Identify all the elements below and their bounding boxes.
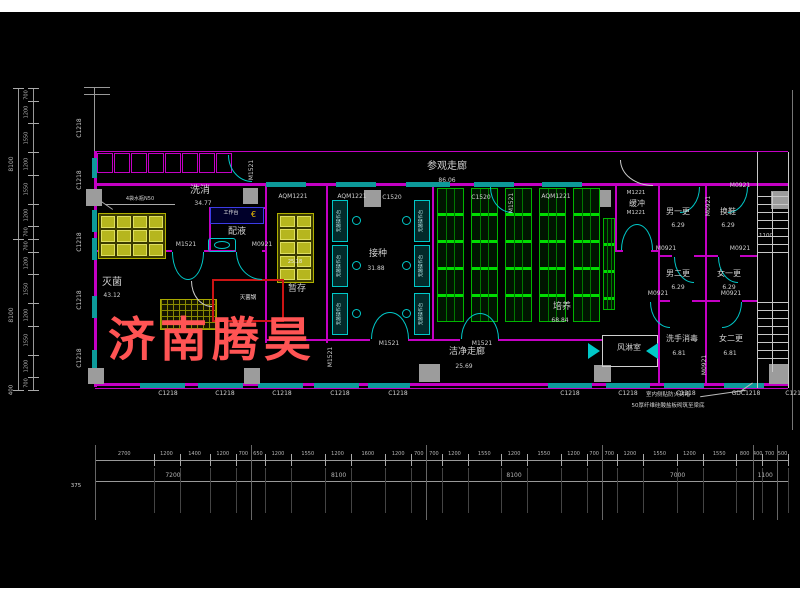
stair-tread — [758, 204, 788, 205]
wall-chg-r1b — [694, 255, 718, 257]
room-women-change-2: 女二更 — [719, 335, 743, 343]
grid-stub — [703, 468, 704, 513]
culture-rack — [471, 188, 498, 322]
plan-label: C1218 — [77, 232, 83, 251]
dim-tick — [351, 454, 352, 466]
dim-tick — [28, 152, 39, 153]
dim-tick — [442, 454, 443, 466]
dim-value: 700 — [765, 452, 775, 457]
dim-value: 1200 — [331, 452, 344, 457]
plan-label: C1218 — [77, 290, 83, 309]
door-arc — [637, 224, 653, 250]
stub — [84, 94, 110, 95]
dim-value: 700 — [605, 452, 615, 457]
dim-total: 8100 — [506, 473, 521, 479]
window-bot-5 — [368, 383, 410, 388]
dim-value: 1550 — [301, 452, 314, 457]
stair-tread — [758, 244, 788, 245]
dim-value: 1200 — [160, 452, 173, 457]
wall-v658 — [658, 185, 660, 385]
grid-stub — [501, 468, 502, 513]
dim-value: 1550 — [25, 131, 30, 144]
dim-tick — [703, 454, 704, 466]
grid-stub — [291, 468, 292, 513]
window-left-3 — [92, 238, 97, 260]
air-shower-door-left — [588, 343, 600, 359]
plan-label: 25.69 — [455, 364, 472, 370]
dim-tick — [28, 252, 39, 253]
stair-tread — [758, 358, 788, 359]
column — [244, 368, 260, 384]
dim-value: 1200 — [448, 452, 461, 457]
window-top-2 — [336, 182, 376, 187]
stool — [352, 216, 361, 225]
grid-line-right — [792, 90, 793, 430]
stair-tread — [758, 252, 788, 253]
wall-bottom-outer — [95, 388, 788, 389]
room-shoe-change: 换鞋 — [720, 208, 736, 216]
window-bot-4 — [314, 383, 359, 388]
door-arc — [236, 252, 262, 280]
wall-chg-r2c — [742, 300, 757, 302]
locker — [131, 153, 147, 173]
rack-washing-room — [98, 213, 166, 259]
stair-divider — [772, 192, 773, 372]
stair-wall — [757, 152, 758, 388]
wall-corridor-b — [408, 339, 460, 341]
plan-label: C1218 — [785, 391, 800, 397]
column — [243, 188, 258, 204]
plan-label: 6.81 — [723, 351, 736, 357]
grid-stub — [468, 468, 469, 513]
plan-label: 无菌操作台 — [338, 210, 343, 233]
plan-label: C1218 — [77, 348, 83, 367]
plan-label: C1520 — [471, 195, 490, 201]
note-line2: 50厚纤维硅酸盐板砌筑至梁底 — [632, 404, 705, 410]
dim-tick — [28, 355, 39, 356]
stool — [352, 261, 361, 270]
plan-label: M0921 — [702, 355, 708, 375]
plan-label: C1218 — [272, 391, 291, 397]
plan-label: 无菌操作台 — [338, 255, 343, 278]
plan-label: M0921 — [730, 183, 750, 189]
window-bot-6 — [548, 383, 592, 388]
dim-value: 1200 — [567, 452, 580, 457]
wall-buffer-a — [615, 250, 623, 252]
stair-wall — [788, 152, 789, 388]
wall-v326 — [326, 185, 328, 343]
wall-v615 — [615, 185, 617, 250]
plan-label: 68.84 — [551, 318, 568, 324]
stool — [402, 216, 411, 225]
plan-label: M1521 — [328, 347, 334, 367]
door-arc — [650, 302, 670, 328]
dim-value: 1200 — [25, 157, 30, 170]
plan-label: M1521 — [509, 193, 515, 213]
dim-value: 700 — [25, 90, 30, 100]
dim-value: 500 — [778, 452, 788, 457]
plan-label: 25.18 — [288, 260, 302, 265]
plan-label: M0921 — [730, 246, 750, 252]
grid-line — [426, 445, 427, 520]
dim-tick — [236, 454, 237, 466]
column — [88, 368, 104, 384]
wall-chg-r1c — [740, 255, 757, 257]
dim-value: 700 — [414, 452, 424, 457]
plan-label: C1218 — [330, 391, 349, 397]
window-left-4 — [92, 296, 97, 318]
stair-tread — [758, 334, 788, 335]
watermark-text: 济南腾昊 — [108, 301, 316, 370]
plan-label: 6.29 — [671, 223, 684, 229]
dim-total: 8100 — [9, 156, 15, 171]
stool — [402, 309, 411, 318]
locker — [97, 153, 113, 173]
dim-value: 1550 — [25, 183, 30, 196]
grid-line — [602, 445, 603, 520]
dim-value: 1200 — [272, 452, 285, 457]
grid-line — [95, 445, 96, 520]
dim-tick — [180, 454, 181, 466]
dim-tick — [291, 454, 292, 466]
grid-stub — [527, 468, 528, 513]
room-inoculation: 接种 — [369, 250, 387, 259]
window-bot-2 — [198, 383, 243, 388]
dim-value: 700 — [429, 452, 439, 457]
room-cultivation: 培养 — [553, 303, 571, 312]
plan-label: M1521 — [379, 341, 399, 347]
floor-plan: € — [0, 0, 800, 600]
grid-stub — [265, 468, 266, 513]
stair-tread — [758, 302, 788, 303]
window-left-2 — [92, 210, 97, 232]
dim-tick — [28, 390, 39, 391]
wall-chg-r1a — [658, 255, 672, 257]
dim-value: 700 — [25, 228, 30, 238]
dim-tick — [643, 454, 644, 466]
wall-v432 — [432, 185, 434, 339]
column — [594, 365, 611, 382]
grid-stub — [643, 468, 644, 513]
plan-label: C1218 — [618, 391, 637, 397]
stub — [94, 87, 95, 151]
plan-label: C1218 — [158, 391, 177, 397]
dim-tick — [587, 454, 588, 466]
locker — [165, 153, 181, 173]
dim-value: 700 — [25, 241, 30, 251]
dim-tick — [28, 326, 39, 327]
window-bot-1 — [140, 383, 185, 388]
grid-line — [251, 445, 252, 520]
plan-label: C1218 — [560, 391, 579, 397]
plan-label: 无菌操作台 — [420, 210, 425, 233]
dim-tick — [154, 454, 155, 466]
plan-label: AQM1221 — [278, 194, 307, 200]
room-visit-corridor: 参观走廊 — [427, 162, 467, 172]
dim-total: 8100 — [9, 307, 15, 322]
stair-tread — [758, 212, 788, 213]
window-bot-3 — [258, 383, 303, 388]
grid-stub — [351, 468, 352, 513]
wall-top-thin — [95, 151, 788, 152]
dim-tick — [28, 239, 39, 240]
stair-tread — [758, 196, 788, 197]
dim-total: 1100 — [758, 473, 773, 479]
dim-tick — [385, 454, 386, 466]
plan-label: C1218 — [77, 118, 83, 137]
dim-tick — [28, 101, 39, 102]
dim-tick — [28, 88, 39, 89]
column — [771, 191, 789, 209]
sink — [208, 238, 236, 252]
stair-tread — [758, 350, 788, 351]
dim-tick — [28, 226, 39, 227]
plan-label: M0921 — [252, 242, 272, 248]
plan-label: M1521 — [249, 160, 255, 180]
plan-label: 43.12 — [103, 293, 120, 299]
grid-stub — [411, 468, 412, 513]
coin-icon: € — [251, 211, 256, 219]
room-men-change-2: 男二更 — [666, 270, 690, 278]
door-arc — [371, 312, 390, 339]
grid-stub — [325, 468, 326, 513]
dim-tick — [28, 303, 39, 304]
dim-tick — [501, 454, 502, 466]
plan-label: AQM1221 — [337, 194, 366, 200]
room-clean-corridor: 洁净走廊 — [449, 348, 485, 357]
locker — [114, 153, 130, 173]
grid-stub — [442, 468, 443, 513]
equip-rack-note: 4袋水瓶N50 — [126, 197, 154, 202]
plan-label: 无菌操作台 — [420, 255, 425, 278]
dim-tick — [762, 454, 763, 466]
dim-tick — [28, 204, 39, 205]
stair-tread — [758, 220, 788, 221]
dim-value: 700 — [239, 452, 249, 457]
dim-tick — [788, 454, 789, 466]
dim-value: 1200 — [392, 452, 405, 457]
dim-value: 1550 — [25, 282, 30, 295]
dim-tick — [265, 454, 266, 466]
grid-stub — [587, 468, 588, 513]
dim-tick — [28, 175, 39, 176]
grid-line — [777, 445, 778, 520]
stool — [352, 309, 361, 318]
plan-label: M1521 — [176, 242, 196, 248]
dim-value: 2700 — [118, 452, 131, 457]
culture-rack — [437, 188, 464, 322]
plan-label: 无菌操作台 — [338, 303, 343, 326]
dim-tick — [210, 454, 211, 466]
wall-chg-r2b — [692, 300, 720, 302]
dim-value: 1200 — [508, 452, 521, 457]
culture-rack — [573, 188, 600, 322]
window-bot-7 — [606, 383, 650, 388]
window-top-5 — [542, 182, 582, 187]
dim-value: 650 — [253, 452, 263, 457]
cad-floorplan-screenshot: € — [0, 0, 800, 600]
room-men-change-1: 男一更 — [666, 208, 690, 216]
plan-label: C1520 — [382, 195, 401, 201]
stair-tread — [758, 310, 788, 311]
plan-label: 无菌操作台 — [420, 303, 425, 326]
dim-value: 400 — [753, 452, 763, 457]
dim-value: 1200 — [25, 308, 30, 321]
door-arc — [172, 252, 188, 280]
equip-workbench-label: 工作台 — [223, 211, 238, 216]
dim-tick — [617, 454, 618, 466]
plan-label: AQM1221 — [541, 194, 570, 200]
dim-tick — [28, 123, 39, 124]
stair-tread — [758, 228, 788, 229]
rack-note-underline — [105, 204, 175, 205]
dim-value: 1550 — [25, 334, 30, 347]
dim-tick — [561, 454, 562, 466]
dim-value: 1600 — [361, 452, 374, 457]
dim-value: 700 — [589, 452, 599, 457]
stair-tread — [758, 318, 788, 319]
locker — [199, 153, 215, 173]
plan-label: C1218 — [215, 391, 234, 397]
grid-stub — [236, 468, 237, 513]
dim-value: 1200 — [216, 452, 229, 457]
dim-tick — [13, 88, 24, 89]
plan-label: M1221 — [627, 191, 646, 197]
window-left-5 — [92, 350, 97, 370]
plan-label: 34.77 — [194, 201, 211, 207]
plan-label: C1218 — [388, 391, 407, 397]
window-bot-8 — [664, 383, 704, 388]
dim-value: 1550 — [478, 452, 491, 457]
grid-stub — [385, 468, 386, 513]
plan-label: M0921 — [648, 291, 668, 297]
dim-tick — [13, 239, 24, 240]
dim-value: 700 — [25, 379, 30, 389]
plan-label: 6.29 — [721, 223, 734, 229]
dim-tick — [527, 454, 528, 466]
dim-value: 1550 — [537, 452, 550, 457]
grid-stub — [561, 468, 562, 513]
dim-value: 1200 — [624, 452, 637, 457]
dim-tick — [736, 454, 737, 466]
column — [419, 364, 440, 382]
dim-value: 800 — [740, 452, 750, 457]
dim-tick — [325, 454, 326, 466]
dim-total: 7200 — [165, 473, 180, 479]
room-hand-wash: 洗手消毒 — [666, 335, 698, 343]
dim-value: 1400 — [188, 452, 201, 457]
dim-tick — [677, 454, 678, 466]
stair-tread — [758, 236, 788, 237]
dim-value: 1200 — [683, 452, 696, 457]
rack-storage-room — [277, 213, 314, 283]
air-shower-door-right — [646, 343, 658, 359]
grid-stub — [210, 468, 211, 513]
plan-label: M1521 — [472, 341, 492, 347]
dim-value: 1550 — [653, 452, 666, 457]
room-buffer: 缓冲 — [629, 200, 645, 208]
room-women-change-1: 女一更 — [717, 270, 741, 278]
room-liquid-prep: 配液 — [228, 228, 246, 237]
dim-value: 1200 — [25, 257, 30, 270]
dim-tick — [13, 390, 24, 391]
grid-stub — [154, 468, 155, 513]
plan-label: C1218 — [77, 170, 83, 189]
plan-label: 375 — [71, 484, 82, 490]
dim-tick — [28, 274, 39, 275]
room-washing: 洗消 — [190, 186, 210, 196]
dim-tick — [411, 454, 412, 466]
room-air-shower: 风淋室 — [617, 344, 641, 352]
locker — [148, 153, 164, 173]
stair-tread — [758, 342, 788, 343]
note-line1: 室内侧贴防火封堵 — [646, 393, 690, 399]
dim-value: 1200 — [25, 359, 30, 372]
plan-label: M0921 — [656, 246, 676, 252]
dim-total: 8100 — [331, 473, 346, 479]
plan-label: GDC1218 — [732, 391, 761, 397]
dim-tick — [468, 454, 469, 466]
plan-label: 6.29 — [671, 285, 684, 291]
plan-label: 86.06 — [438, 178, 455, 184]
wall-corridor-c — [498, 339, 602, 341]
culture-rack-small — [603, 218, 615, 310]
stool — [402, 261, 411, 270]
grid-stub — [736, 468, 737, 513]
grid-stub — [788, 468, 789, 513]
plan-label: M0921 — [721, 291, 741, 297]
plan-label: 31.88 — [367, 266, 384, 272]
locker — [182, 153, 198, 173]
plan-label: M1221 — [627, 211, 646, 217]
dim-total: 7000 — [670, 473, 685, 479]
column — [86, 189, 102, 206]
dim-value: 1200 — [25, 106, 30, 119]
grid-stub — [617, 468, 618, 513]
room-temp-storage: 暂存 — [288, 285, 306, 294]
plan-label: M0921 — [706, 196, 712, 216]
door-arc — [621, 224, 637, 250]
rack-note-leader — [101, 201, 113, 210]
dim-value: 1200 — [25, 208, 30, 221]
stub — [84, 87, 110, 88]
stair-tread — [758, 326, 788, 327]
plan-label: 6.81 — [672, 351, 685, 357]
door-arc — [188, 252, 204, 280]
dim-tick — [28, 377, 39, 378]
grid-line — [753, 445, 754, 520]
dim-value: 1550 — [713, 452, 726, 457]
room-sterilization: 灭菌 — [102, 278, 122, 288]
door-arc — [722, 302, 742, 328]
window-top-1 — [266, 182, 306, 187]
